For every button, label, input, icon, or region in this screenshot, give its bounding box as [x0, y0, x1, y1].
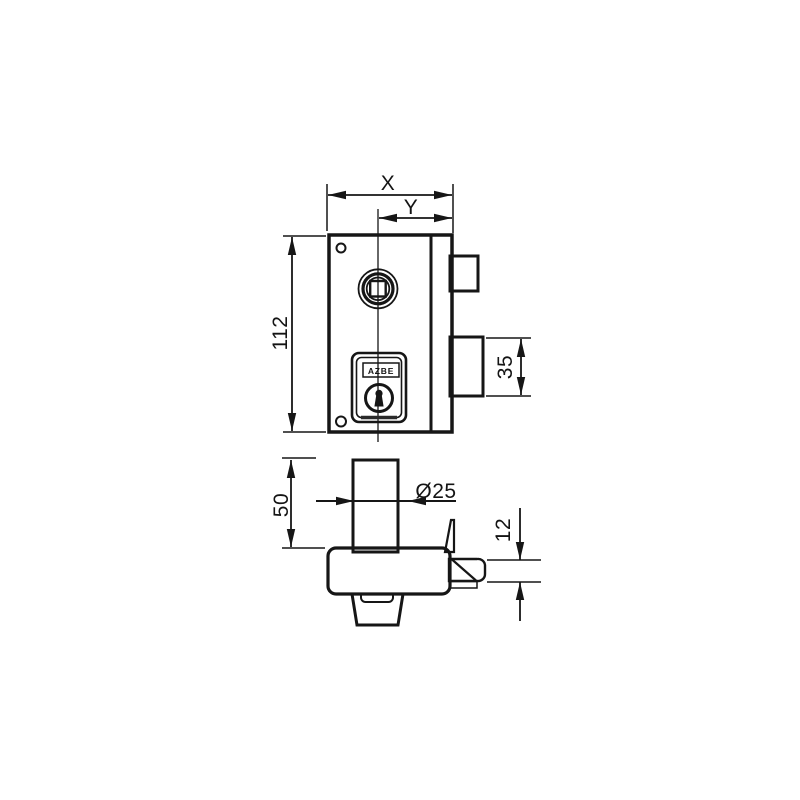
side-faceplate-lip [445, 520, 454, 552]
keyhole-icon [366, 385, 393, 412]
dimension-diameter-25-label: Ø25 [415, 480, 456, 503]
side-cylinder [353, 460, 398, 552]
front-screw-hole-bottom [336, 417, 346, 427]
dimension-50-label: 50 [270, 493, 293, 517]
dimension-diameter-25: Ø25 [316, 480, 457, 505]
dimension-x-label: X [381, 172, 396, 195]
side-latchbolt [449, 559, 485, 588]
drawing-canvas: AZBE X Y 112 [0, 0, 800, 800]
dimension-50: 50 [270, 458, 325, 548]
dimension-12-label: 12 [492, 518, 515, 542]
side-lock-body [328, 548, 450, 594]
dimension-12: 12 [487, 508, 541, 621]
dimension-112: 112 [269, 236, 326, 432]
dimension-y-label: Y [404, 196, 419, 219]
dimension-35-label: 35 [494, 355, 517, 379]
dimension-x: X [327, 172, 453, 233]
brand-label: AZBE [368, 366, 394, 376]
front-view: AZBE [329, 209, 483, 442]
front-deadbolt [450, 337, 483, 396]
side-bottom-boss [352, 594, 403, 625]
dimension-y: Y [379, 196, 452, 222]
front-latchbolt [450, 256, 478, 291]
dimension-35: 35 [486, 338, 531, 396]
front-screw-hole-top [337, 244, 346, 253]
side-latch-strip [450, 582, 477, 589]
technical-drawing: AZBE X Y 112 [0, 0, 800, 800]
dimension-112-label: 112 [269, 316, 292, 351]
side-view [328, 460, 485, 625]
front-escutcheon-plate: AZBE [352, 353, 406, 422]
